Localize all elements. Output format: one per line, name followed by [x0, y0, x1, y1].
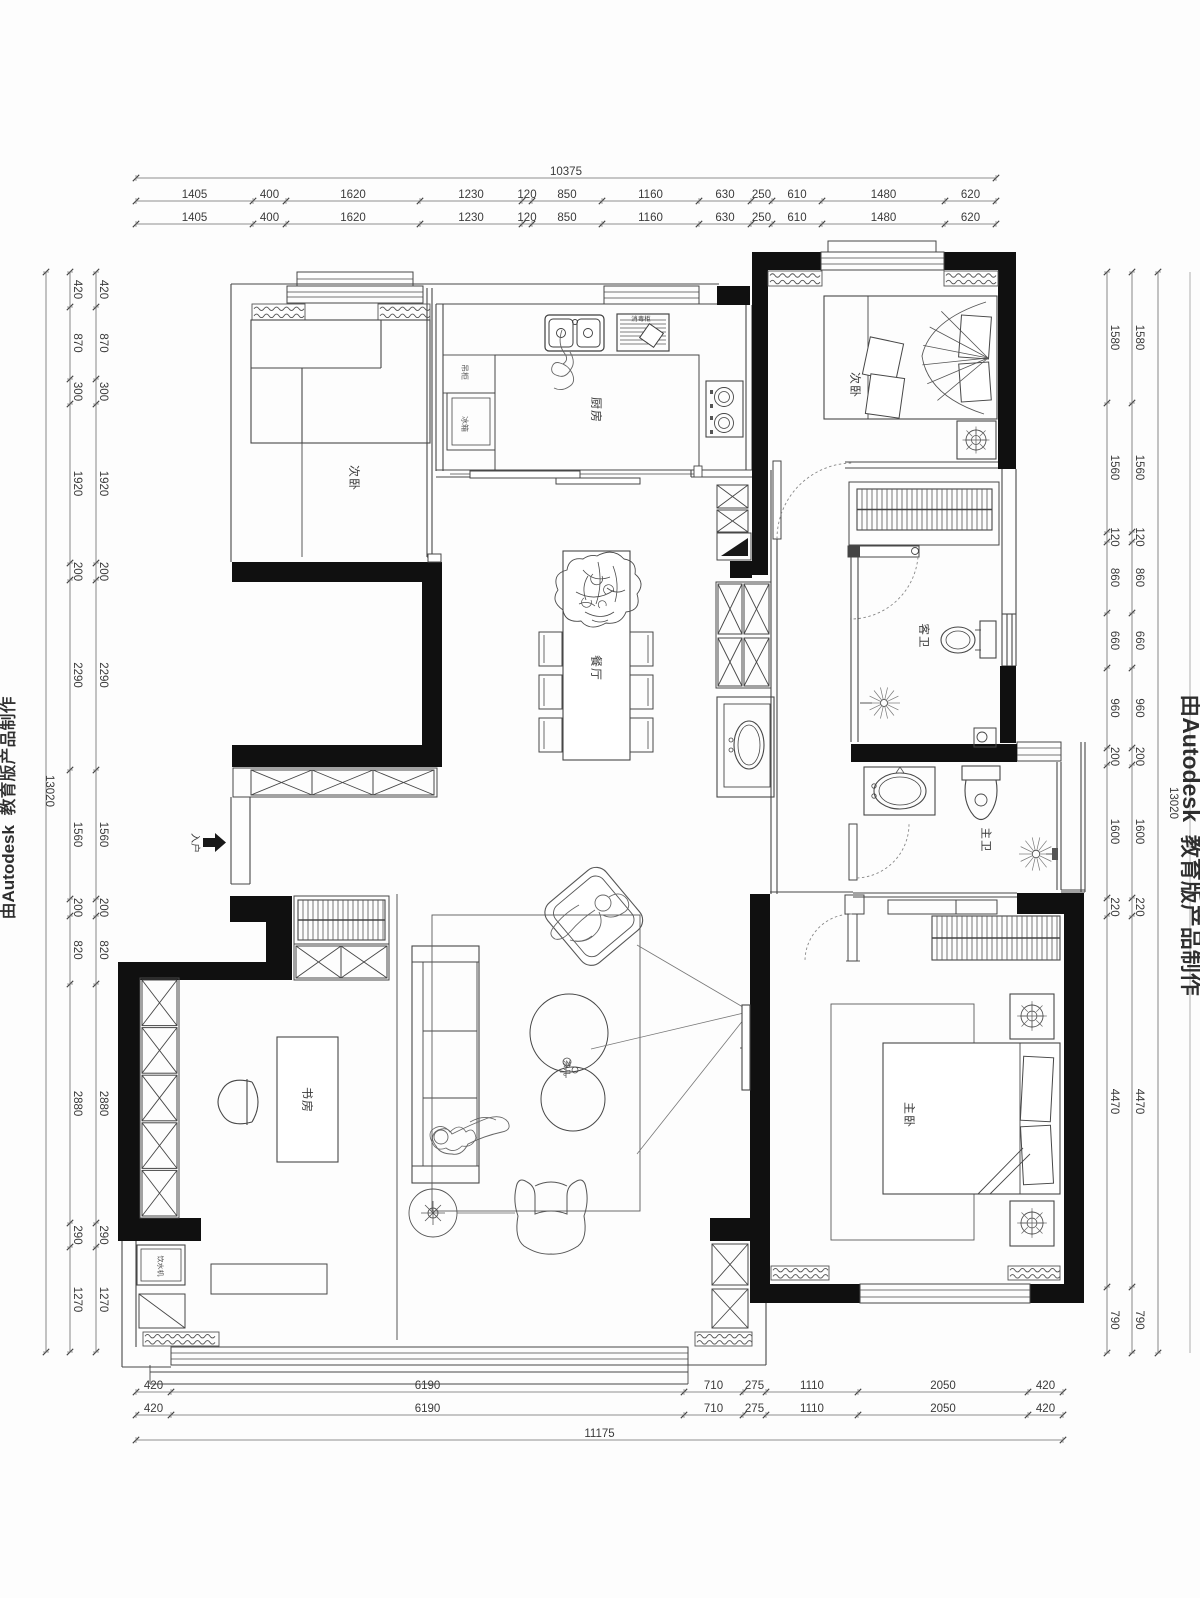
svg-text:790: 790	[1133, 1310, 1145, 1329]
svg-text:200: 200	[1133, 747, 1145, 766]
svg-text:610: 610	[787, 212, 806, 224]
svg-text:660: 660	[1133, 631, 1145, 650]
svg-text:120: 120	[517, 212, 536, 224]
svg-text:4470: 4470	[1108, 1089, 1120, 1115]
svg-text:860: 860	[1108, 568, 1120, 587]
svg-text:250: 250	[752, 189, 771, 201]
svg-text:13020: 13020	[1167, 787, 1179, 819]
svg-text:290: 290	[97, 1225, 109, 1244]
svg-text:300: 300	[71, 382, 83, 401]
svg-text:1580: 1580	[1108, 325, 1120, 351]
svg-text:1920: 1920	[71, 471, 83, 497]
svg-text:250: 250	[752, 212, 771, 224]
svg-text:200: 200	[97, 562, 109, 581]
svg-text:1620: 1620	[340, 189, 366, 201]
svg-text:1560: 1560	[97, 822, 109, 848]
svg-text:1480: 1480	[871, 189, 897, 201]
svg-text:960: 960	[1108, 698, 1120, 717]
svg-text:120: 120	[517, 189, 536, 201]
svg-text:6190: 6190	[415, 1403, 441, 1415]
svg-text:275: 275	[745, 1380, 764, 1392]
svg-text:1600: 1600	[1133, 819, 1145, 845]
svg-text:1580: 1580	[1133, 325, 1145, 351]
svg-text:630: 630	[715, 189, 734, 201]
svg-text:10375: 10375	[550, 166, 582, 178]
svg-text:870: 870	[71, 333, 83, 352]
svg-text:420: 420	[71, 280, 83, 299]
svg-text:2290: 2290	[97, 662, 109, 688]
svg-text:710: 710	[704, 1403, 723, 1415]
svg-text:420: 420	[1036, 1380, 1055, 1392]
svg-text:850: 850	[557, 189, 576, 201]
svg-text:11175: 11175	[584, 1428, 614, 1440]
svg-text:200: 200	[71, 562, 83, 581]
svg-text:1270: 1270	[97, 1287, 109, 1313]
svg-text:1560: 1560	[1108, 455, 1120, 481]
svg-text:300: 300	[97, 382, 109, 401]
svg-text:Autodesk: Autodesk	[1178, 717, 1200, 822]
svg-text:1230: 1230	[458, 212, 484, 224]
svg-text:1110: 1110	[800, 1380, 824, 1392]
svg-text:710: 710	[704, 1380, 723, 1392]
svg-text:290: 290	[71, 1225, 83, 1244]
svg-text:1160: 1160	[638, 212, 663, 224]
svg-text:2290: 2290	[71, 662, 83, 688]
svg-text:790: 790	[1108, 1310, 1120, 1329]
svg-text:1620: 1620	[340, 212, 366, 224]
svg-text:200: 200	[97, 898, 109, 917]
svg-text:420: 420	[1036, 1403, 1055, 1415]
svg-text:620: 620	[961, 189, 980, 201]
svg-text:1270: 1270	[71, 1287, 83, 1313]
svg-text:2050: 2050	[930, 1380, 956, 1392]
svg-text:1230: 1230	[458, 189, 484, 201]
svg-text:1405: 1405	[182, 189, 208, 201]
svg-text:275: 275	[745, 1403, 764, 1415]
svg-text:120: 120	[1133, 527, 1145, 546]
svg-text:960: 960	[1133, 698, 1145, 717]
svg-text:400: 400	[260, 189, 279, 201]
svg-text:630: 630	[715, 212, 734, 224]
svg-text:1600: 1600	[1108, 819, 1120, 845]
svg-text:820: 820	[71, 940, 83, 959]
svg-text:200: 200	[71, 898, 83, 917]
svg-text:400: 400	[260, 212, 279, 224]
svg-text:870: 870	[97, 333, 109, 352]
svg-text:1480: 1480	[871, 212, 897, 224]
svg-text:13020: 13020	[43, 775, 55, 807]
svg-text:2050: 2050	[930, 1403, 956, 1415]
svg-text:610: 610	[787, 189, 806, 201]
svg-text:220: 220	[1108, 897, 1120, 916]
svg-text:1110: 1110	[800, 1403, 824, 1415]
svg-text:4470: 4470	[1133, 1089, 1145, 1115]
svg-text:420: 420	[144, 1380, 163, 1392]
svg-text:420: 420	[97, 280, 109, 299]
svg-text:200: 200	[1108, 747, 1120, 766]
svg-text:120: 120	[1108, 527, 1120, 546]
svg-text:660: 660	[1108, 631, 1120, 650]
svg-text:6190: 6190	[415, 1380, 441, 1392]
svg-text:Autodesk: Autodesk	[0, 825, 18, 903]
svg-text:1560: 1560	[71, 822, 83, 848]
svg-text:2880: 2880	[71, 1091, 83, 1117]
svg-text:1405: 1405	[182, 212, 208, 224]
svg-text:1560: 1560	[1133, 455, 1145, 481]
svg-text:850: 850	[557, 212, 576, 224]
svg-text:820: 820	[97, 940, 109, 959]
svg-text:420: 420	[144, 1403, 163, 1415]
svg-text:1160: 1160	[638, 189, 663, 201]
svg-text:620: 620	[961, 212, 980, 224]
svg-text:1920: 1920	[97, 471, 109, 497]
svg-text:860: 860	[1133, 568, 1145, 587]
svg-text:2880: 2880	[97, 1091, 109, 1117]
svg-text:220: 220	[1133, 897, 1145, 916]
